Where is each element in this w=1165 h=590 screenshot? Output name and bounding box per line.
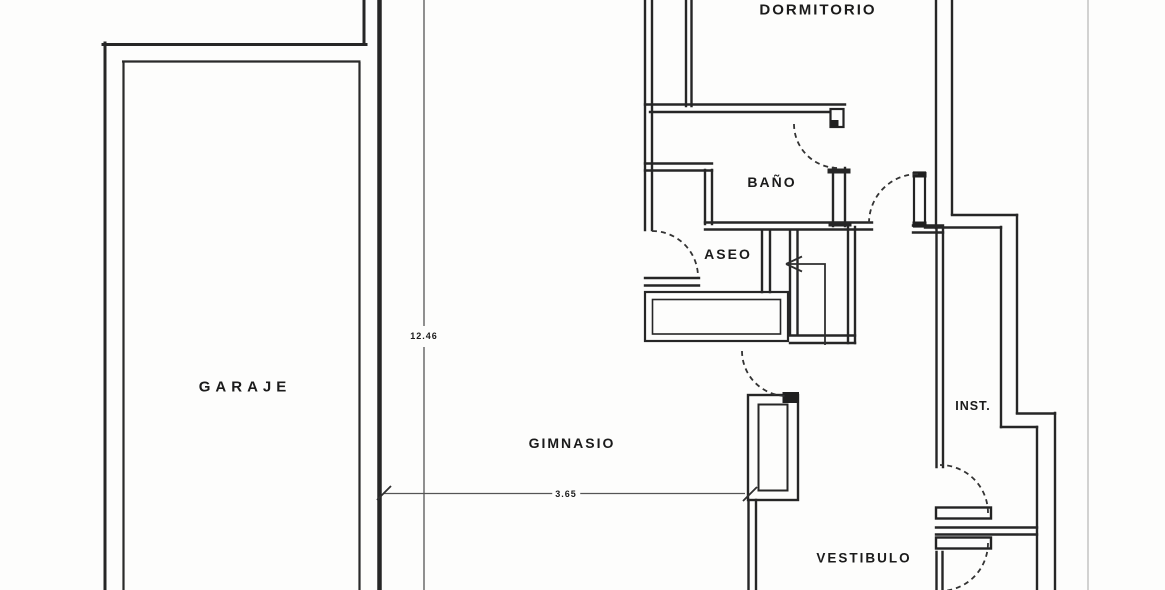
dimension-label-vertical: 12.46	[407, 331, 441, 341]
dimension-lines	[377, 0, 757, 590]
right-block-walls	[925, 0, 1055, 590]
floor-plan: DORMITORIO BAÑO ASEO GARAJE GIMNASIO VES…	[0, 0, 1165, 590]
floor-plan-drawing	[0, 0, 1165, 590]
door-arc-bano	[794, 124, 838, 168]
door-jamb-bano	[831, 109, 844, 127]
door-arc-inst-lower	[940, 543, 988, 590]
door-post-hall	[913, 172, 927, 227]
fixture-bench	[645, 292, 788, 341]
room-label-garaje: GARAJE	[199, 379, 292, 396]
garage-walls	[122, 61, 361, 590]
interior-walls	[645, 0, 943, 590]
room-label-vestibulo: VESTIBULO	[816, 551, 911, 566]
door-arc-inst-upper	[940, 465, 988, 513]
room-label-dormitorio: DORMITORIO	[759, 2, 876, 19]
dimension-label-horizontal: 3.65	[552, 489, 580, 499]
door-arc-hall	[869, 174, 918, 223]
room-label-gimnasio: GIMNASIO	[529, 435, 616, 451]
room-label-aseo: ASEO	[704, 246, 752, 262]
entry-direction-arrow	[786, 257, 825, 346]
outer-walls	[103, 0, 380, 590]
room-label-bano: BAÑO	[747, 174, 796, 190]
door-arc-entry	[742, 351, 787, 396]
wall-pier	[748, 392, 799, 500]
room-label-inst: INST.	[955, 399, 991, 413]
door-arc-aseo	[652, 231, 698, 277]
